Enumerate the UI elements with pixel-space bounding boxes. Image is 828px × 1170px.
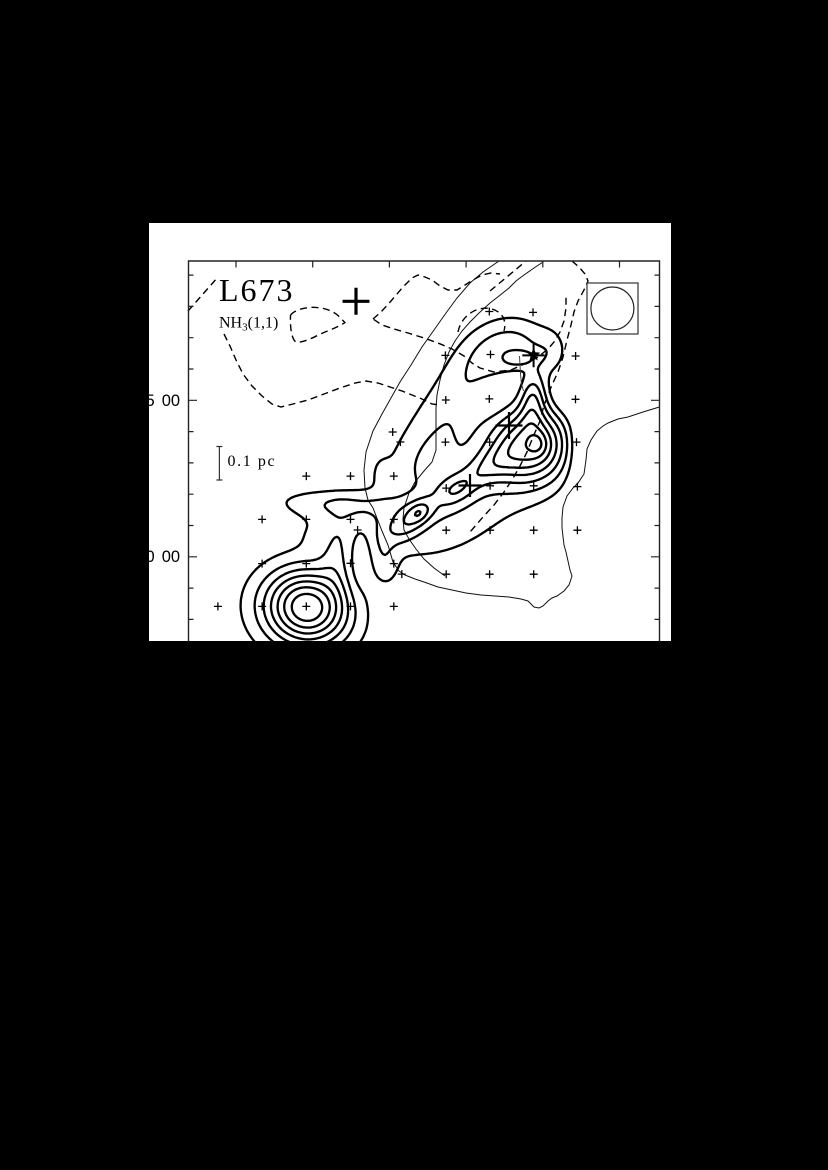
svg-text:0 00: 0 00 — [149, 548, 180, 566]
svg-text:L673: L673 — [219, 272, 295, 308]
svg-text:NH3(1,1): NH3(1,1) — [219, 315, 278, 334]
svg-text:0.1 pc: 0.1 pc — [228, 453, 277, 470]
svg-text:5 00: 5 00 — [149, 392, 180, 410]
